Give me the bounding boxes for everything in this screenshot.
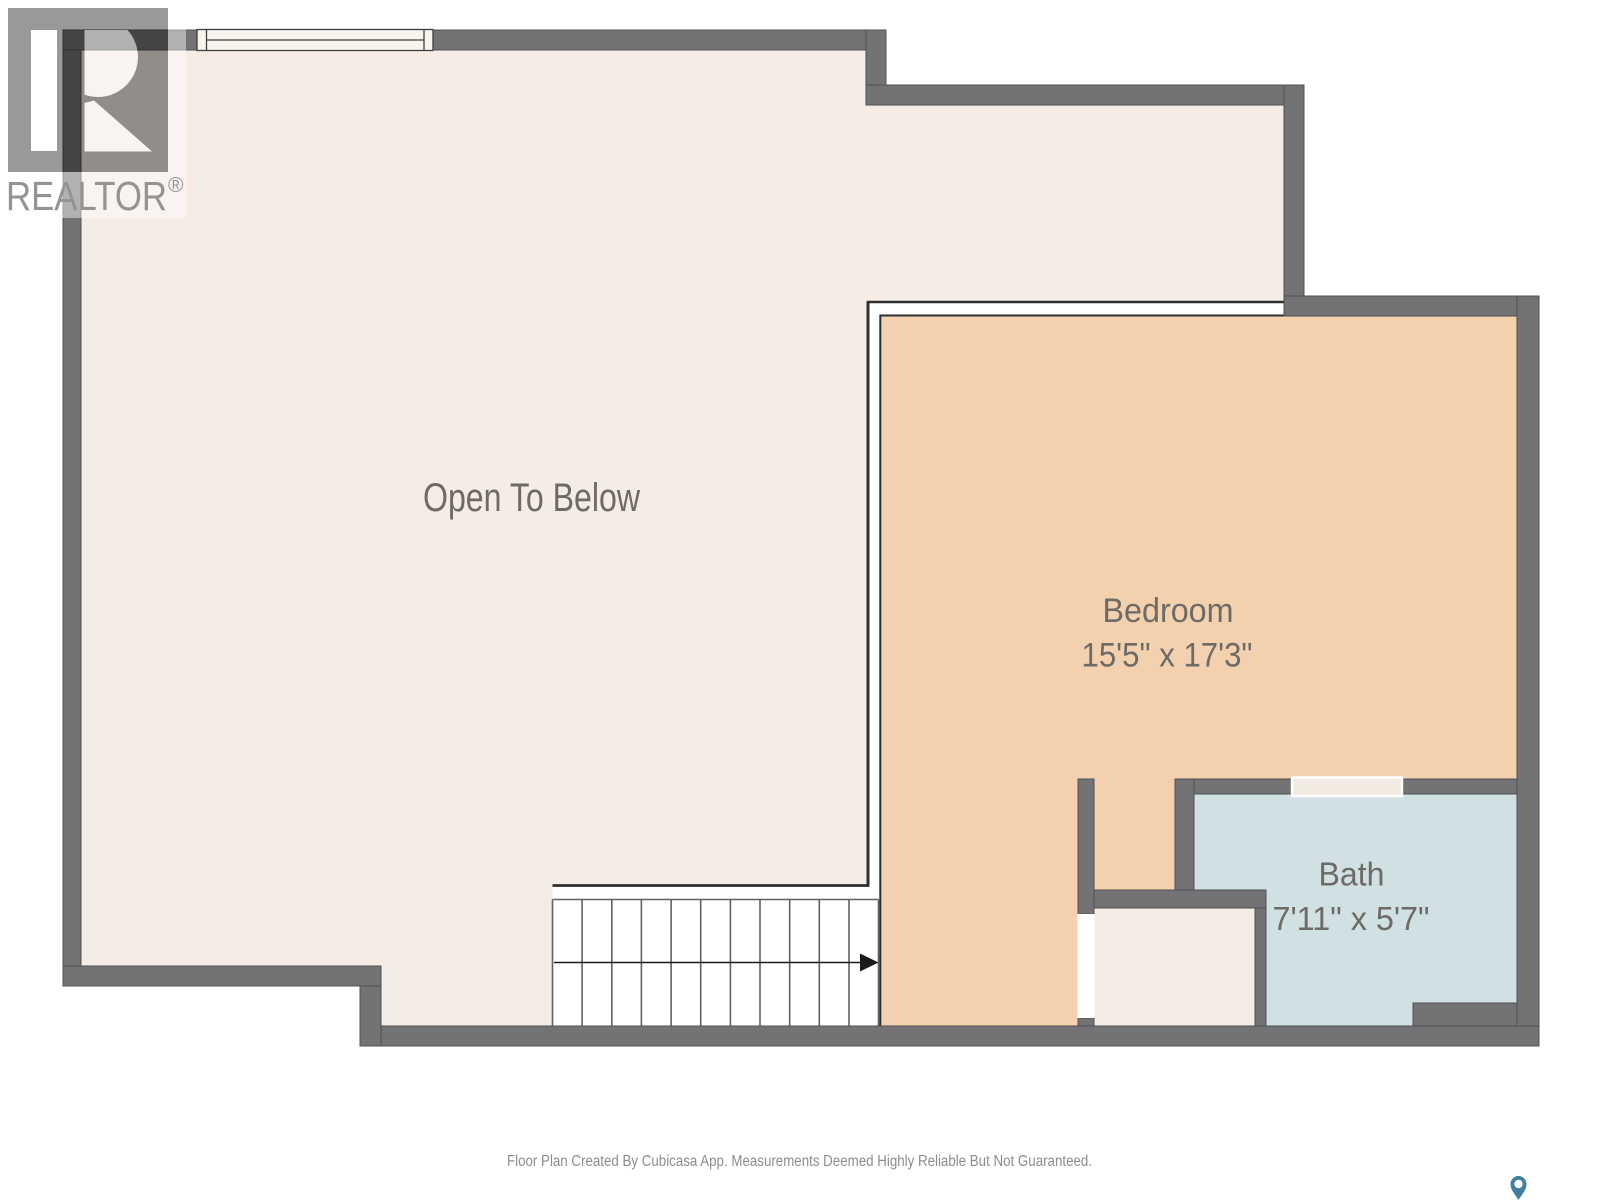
svg-text:REALTOR: REALTOR: [6, 173, 167, 219]
svg-text:®: ®: [168, 174, 184, 197]
svg-text:Bedroom: Bedroom: [1103, 592, 1234, 630]
svg-text:Open To Below: Open To Below: [423, 476, 640, 520]
svg-text:15'5" x 17'3": 15'5" x 17'3": [1082, 637, 1253, 675]
svg-text:7'11" x 5'7": 7'11" x 5'7": [1273, 900, 1430, 937]
svg-text:Bath: Bath: [1319, 856, 1385, 893]
svg-text:Floor Plan Created By Cubicasa: Floor Plan Created By Cubicasa App. Meas…: [507, 1153, 1092, 1170]
